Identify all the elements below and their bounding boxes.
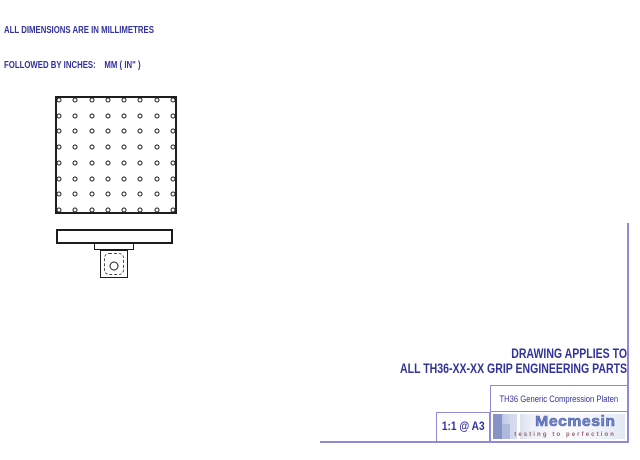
platen-hole: [57, 160, 62, 165]
platen-hole: [89, 129, 94, 134]
platen-hole: [89, 176, 94, 181]
platen-hole: [138, 98, 143, 103]
platen-hole: [73, 129, 78, 134]
platen-hole: [122, 160, 127, 165]
platen-hole: [89, 192, 94, 197]
applies-note: DRAWING APPLIES TO ALL TH36-XX-XX GRIP E…: [400, 346, 627, 376]
platen-hole: [171, 145, 176, 150]
platen-hole: [57, 129, 62, 134]
platen-hole: [171, 176, 176, 181]
platen-hole: [73, 145, 78, 150]
boss-pin-hole: [110, 262, 119, 271]
platen-hole: [73, 176, 78, 181]
part-title: TH36 Generic Compression Platen: [500, 394, 619, 404]
platen-hole: [138, 160, 143, 165]
platen-hole: [89, 98, 94, 103]
platen-hole: [138, 208, 143, 213]
platen-hole: [171, 192, 176, 197]
platen-hole: [89, 145, 94, 150]
platen-hole: [154, 176, 159, 181]
platen-hole: [171, 113, 176, 118]
scale-value: 1:1 @ A3: [442, 421, 485, 433]
platen-hole: [138, 145, 143, 150]
platen-hole: [73, 208, 78, 213]
platen-hole: [171, 208, 176, 213]
platen-hole: [154, 129, 159, 134]
platen-hole: [105, 160, 110, 165]
platen-hole: [89, 113, 94, 118]
platen-top-view: [55, 96, 177, 214]
platen-hole: [122, 145, 127, 150]
platen-hole: [57, 98, 62, 103]
platen-hole: [105, 98, 110, 103]
title-block: TH36 Generic Compression Platen Mecmesin…: [490, 385, 628, 442]
platen-hole: [73, 192, 78, 197]
units-note: ALL DIMENSIONS ARE IN MILLIMETRES FOLLOW…: [4, 2, 154, 94]
units-note-line2: FOLLOWED BY INCHES: MM ( IN" ): [4, 60, 154, 72]
platen-hole: [73, 98, 78, 103]
platen-hole: [105, 208, 110, 213]
platen-hole-grid: [59, 100, 173, 210]
platen-hole: [73, 160, 78, 165]
platen-hole: [154, 160, 159, 165]
platen-hole: [154, 208, 159, 213]
platen-hole: [122, 129, 127, 134]
platen-hole: [73, 113, 78, 118]
platen-hole: [89, 160, 94, 165]
platen-hole: [138, 129, 143, 134]
platen-hole: [57, 145, 62, 150]
platen-hole: [105, 113, 110, 118]
logo-mark-block-2: [502, 424, 510, 439]
platen-hole: [138, 176, 143, 181]
platen-hole: [57, 113, 62, 118]
platen-hole: [171, 98, 176, 103]
platen-hole: [105, 176, 110, 181]
platen-hole: [154, 98, 159, 103]
platen-hole: [122, 113, 127, 118]
platen-hole: [57, 176, 62, 181]
platen-hole: [122, 98, 127, 103]
platen-hole: [105, 192, 110, 197]
platen-side-bar: [56, 229, 173, 244]
units-note-line1: ALL DIMENSIONS ARE IN MILLIMETRES: [4, 25, 154, 37]
scale-cell: 1:1 @ A3: [436, 412, 490, 442]
platen-hole: [105, 145, 110, 150]
logo-cell: Mecmesin testing to perfection: [491, 412, 627, 441]
platen-hole: [171, 129, 176, 134]
logo-mark-block-1: [493, 414, 502, 439]
mounting-boss: [100, 250, 128, 278]
brand-tagline: testing to perfection: [514, 432, 616, 438]
platen-hole: [171, 160, 176, 165]
platen-hole: [154, 113, 159, 118]
platen-hole: [122, 176, 127, 181]
platen-hole: [122, 192, 127, 197]
platen-hole: [105, 129, 110, 134]
mecmesin-logo: Mecmesin testing to perfection: [493, 414, 625, 439]
platen-hole: [57, 192, 62, 197]
platen-hole: [57, 208, 62, 213]
platen-hole: [154, 192, 159, 197]
platen-hole: [138, 113, 143, 118]
platen-hole: [89, 208, 94, 213]
drawing-sheet: ALL DIMENSIONS ARE IN MILLIMETRES FOLLOW…: [0, 0, 640, 460]
part-title-cell: TH36 Generic Compression Platen: [491, 386, 627, 412]
platen-hole: [122, 208, 127, 213]
brand-wordmark: Mecmesin: [536, 414, 616, 430]
applies-note-line1: DRAWING APPLIES TO: [400, 346, 627, 361]
platen-hole: [154, 145, 159, 150]
applies-note-line2: ALL TH36-XX-XX GRIP ENGINEERING PARTS: [400, 361, 627, 376]
platen-hole: [138, 192, 143, 197]
